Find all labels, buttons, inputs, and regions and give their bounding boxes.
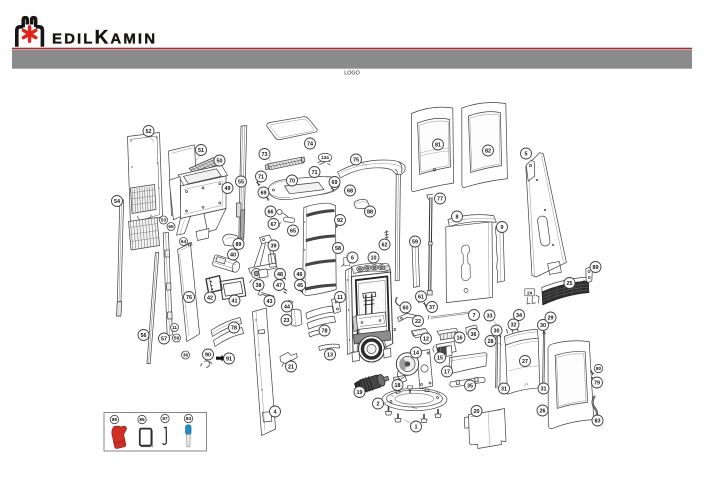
svg-text:64: 64 [181,239,187,244]
svg-text:10: 10 [371,256,377,262]
svg-text:26: 26 [540,409,546,415]
svg-text:88: 88 [367,210,373,216]
svg-text:7: 7 [473,313,476,319]
svg-text:66: 66 [268,210,274,216]
svg-text:39: 39 [271,244,277,250]
svg-text:83: 83 [595,419,601,425]
svg-text:78: 78 [231,326,237,332]
svg-text:11: 11 [337,295,343,301]
svg-text:78: 78 [322,329,328,335]
svg-text:71: 71 [258,175,264,181]
svg-text:31: 31 [541,387,547,393]
svg-text:27: 27 [522,359,528,365]
svg-text:30: 30 [540,323,546,329]
svg-text:14: 14 [413,351,419,357]
svg-text:3: 3 [393,327,396,332]
svg-text:6: 6 [351,256,354,262]
svg-text:16: 16 [457,336,463,342]
svg-text:45: 45 [297,283,303,289]
svg-text:75: 75 [353,158,359,164]
svg-text:69: 69 [332,180,338,186]
svg-text:13: 13 [327,353,333,359]
svg-text:11: 11 [172,325,177,330]
svg-text:8: 8 [456,215,459,221]
svg-text:17: 17 [444,370,450,376]
svg-text:52: 52 [146,129,152,135]
svg-text:37: 37 [429,305,435,311]
svg-text:35: 35 [467,384,473,390]
svg-text:54: 54 [114,199,120,205]
svg-text:86: 86 [112,417,118,422]
svg-text:134: 134 [321,155,329,160]
svg-text:59: 59 [412,240,418,246]
svg-text:44: 44 [284,305,290,311]
svg-text:56: 56 [141,333,147,339]
svg-text:53: 53 [161,218,167,223]
svg-text:47: 47 [276,283,282,289]
svg-text:57: 57 [161,337,167,343]
svg-text:84: 84 [186,416,192,421]
svg-text:91: 91 [226,357,232,363]
svg-text:70: 70 [289,179,295,185]
svg-text:65: 65 [290,229,296,235]
svg-text:25: 25 [567,281,573,287]
svg-text:65: 65 [168,224,174,229]
svg-text:38: 38 [256,283,262,289]
svg-text:61: 61 [418,295,424,301]
svg-text:28: 28 [488,339,494,345]
svg-text:20: 20 [474,409,480,415]
svg-text:46: 46 [297,272,303,278]
svg-text:60: 60 [403,306,409,312]
svg-text:81: 81 [435,143,441,149]
svg-text:19: 19 [357,390,363,396]
svg-text:77: 77 [437,197,443,203]
svg-text:42: 42 [207,296,213,302]
svg-text:34: 34 [516,313,522,319]
svg-text:31: 31 [501,387,507,393]
svg-text:36: 36 [183,353,189,358]
svg-text:80: 80 [596,366,602,371]
svg-text:89: 89 [593,265,599,271]
svg-text:89: 89 [236,242,242,248]
svg-text:9: 9 [501,225,504,231]
svg-text:79: 79 [594,381,600,387]
svg-text:23: 23 [284,318,290,324]
svg-text:EDILKAMIN: EDILKAMIN [52,28,157,49]
svg-text:49: 49 [225,186,231,192]
svg-text:15: 15 [437,356,443,362]
svg-text:71: 71 [312,170,318,176]
svg-text:36: 36 [471,332,477,338]
svg-text:59: 59 [174,336,180,341]
svg-text:85: 85 [139,417,145,422]
svg-text:55: 55 [238,180,244,186]
svg-text:22: 22 [415,319,421,325]
svg-text:12: 12 [423,337,429,343]
svg-text:21: 21 [288,365,294,371]
svg-text:82: 82 [485,149,491,155]
svg-text:40: 40 [230,253,236,259]
svg-text:2: 2 [377,402,380,408]
svg-text:1: 1 [415,425,418,431]
svg-text:67: 67 [271,222,277,228]
svg-text:33: 33 [487,314,493,320]
svg-text:69: 69 [261,191,267,197]
svg-text:4: 4 [274,410,277,416]
svg-text:43: 43 [267,299,273,305]
svg-text:41: 41 [232,299,238,305]
svg-text:32: 32 [511,323,517,329]
svg-text:48: 48 [277,272,283,278]
svg-text:30: 30 [494,329,500,335]
svg-text:90: 90 [205,353,211,359]
svg-text:5: 5 [525,152,528,158]
svg-text:74: 74 [307,142,313,148]
svg-text:76: 76 [186,295,192,301]
svg-text:51: 51 [198,148,204,154]
svg-text:50: 50 [217,159,223,165]
svg-text:58: 58 [335,246,341,252]
svg-text:62: 62 [382,243,388,249]
svg-text:73: 73 [262,152,268,158]
svg-text:29: 29 [548,316,554,322]
svg-text:68: 68 [347,189,353,195]
svg-text:92: 92 [337,218,343,224]
svg-text:87: 87 [162,416,168,421]
svg-text:LOGO: LOGO [344,71,360,77]
svg-text:24: 24 [527,290,533,295]
svg-text:18: 18 [395,383,401,389]
